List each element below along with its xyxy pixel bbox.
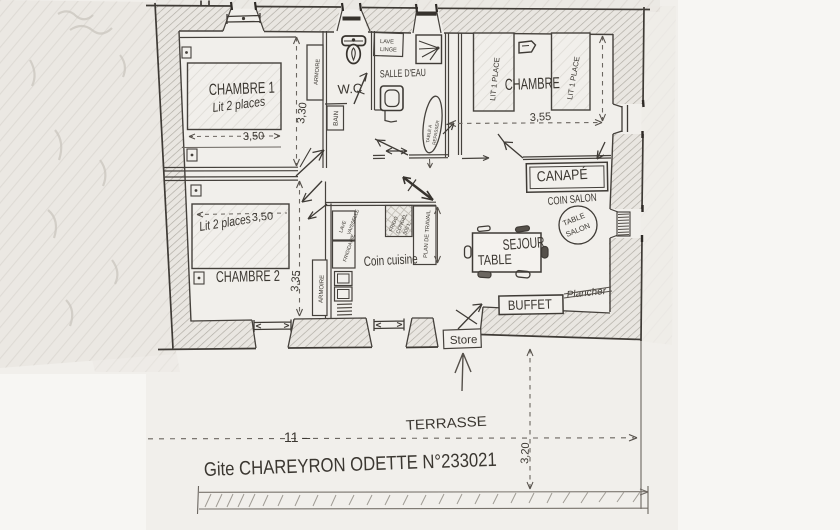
- svg-text:TABLE: TABLE: [478, 251, 513, 268]
- svg-text:3,50: 3,50: [243, 130, 265, 143]
- svg-text:W.C: W.C: [337, 80, 363, 97]
- svg-text:BAIN: BAIN: [333, 110, 341, 126]
- svg-text:CHAMBRE 2: CHAMBRE 2: [216, 268, 280, 286]
- svg-text:3,50: 3,50: [251, 211, 273, 224]
- svg-text:CHAMBRE: CHAMBRE: [505, 75, 561, 94]
- svg-text:SALLE D'EAU: SALLE D'EAU: [380, 67, 426, 81]
- svg-text:LAVE: LAVE: [380, 39, 394, 45]
- svg-text:3,20: 3,20: [519, 442, 532, 464]
- svg-text:3,55: 3,55: [530, 111, 552, 124]
- svg-text:LINGE: LINGE: [380, 47, 397, 54]
- svg-text:CANAPÉ: CANAPÉ: [536, 166, 588, 186]
- svg-text:3,35: 3,35: [289, 270, 303, 292]
- svg-text:BUFFET: BUFFET: [508, 296, 552, 313]
- svg-text:Store: Store: [450, 334, 478, 347]
- svg-text:11 –: 11 –: [284, 429, 310, 445]
- svg-text:Coin cuisine: Coin cuisine: [363, 251, 418, 269]
